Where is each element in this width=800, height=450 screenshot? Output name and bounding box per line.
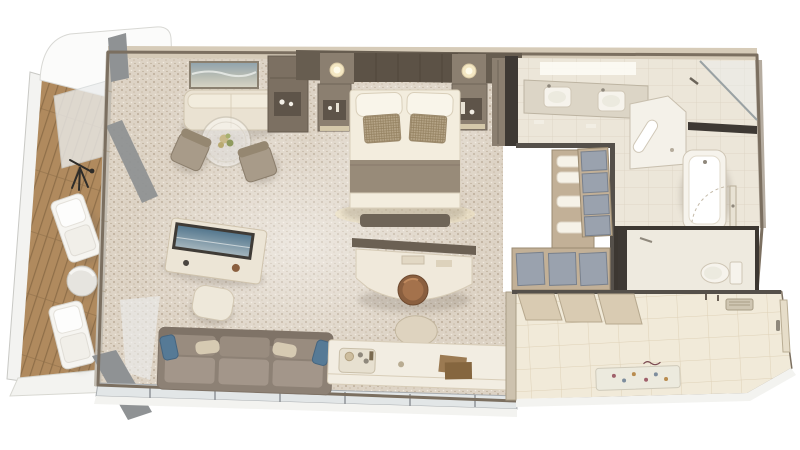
storage-box-column [578, 148, 613, 237]
sliding-closet-doors [518, 294, 642, 324]
door-handle [776, 320, 780, 331]
desk-blotter [402, 256, 424, 264]
duvet-foot [350, 193, 460, 208]
faucet [601, 88, 605, 92]
book [445, 362, 472, 379]
bath-dividing-wall [505, 56, 518, 146]
wall-sconce-icon [462, 64, 476, 78]
room-closet [512, 148, 612, 290]
faucet [547, 84, 551, 88]
vanity-ceiling-light [540, 62, 636, 75]
room-wc [616, 228, 757, 292]
woven-accent-pillow [363, 114, 401, 143]
storage-box-row [512, 248, 610, 290]
nightstand [318, 84, 351, 131]
hall-top-wall [512, 290, 781, 294]
bed-pillow [356, 92, 403, 117]
floorplan-canvas [0, 0, 800, 450]
room-hall [506, 290, 796, 407]
drinks-tray [339, 348, 376, 373]
king-bed [342, 90, 466, 227]
desk-tray [436, 260, 452, 267]
bed-pillow [407, 92, 454, 117]
wc-glass-door-frame [618, 230, 627, 290]
air-vent [726, 299, 753, 310]
foot-bench [360, 214, 450, 227]
desk-stool [398, 275, 428, 305]
tub-faucet [703, 160, 707, 164]
beige-pillow [195, 339, 220, 354]
bottle [369, 351, 373, 360]
wall-sconce-icon [330, 63, 344, 77]
bathtub [680, 150, 732, 233]
sofa [157, 327, 333, 395]
hall-living-wall [506, 292, 516, 400]
woven-accent-pillow [409, 114, 447, 143]
suite-floorplan-render [0, 0, 800, 450]
open-door-panel [108, 33, 129, 82]
toilet-icon [701, 262, 742, 284]
shower-drain [670, 148, 674, 152]
